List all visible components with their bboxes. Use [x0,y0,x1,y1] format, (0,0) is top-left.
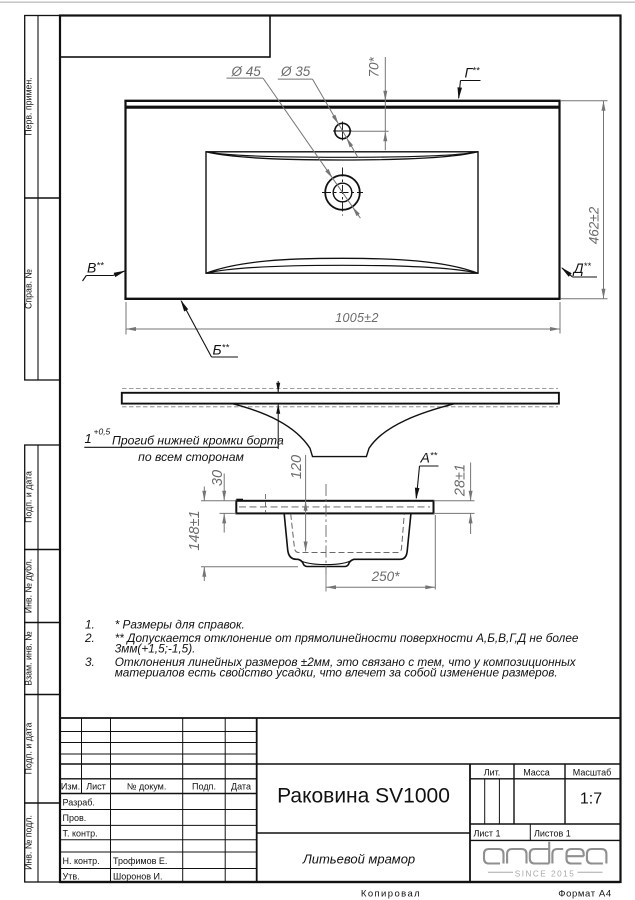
svg-text:Б**: Б** [213,342,230,358]
svg-text:1:7: 1:7 [580,791,602,808]
svg-text:Масса: Масса [523,768,550,778]
svg-text:1.: 1. [85,618,95,632]
svg-text:Инв. № дубл.: Инв. № дубл. [23,559,33,613]
svg-text:Раковина SV1000: Раковина SV1000 [277,785,450,808]
svg-text:Литьевой мрамор: Литьевой мрамор [302,852,415,867]
svg-text:В**: В** [87,260,104,276]
svg-text:Ø 35: Ø 35 [280,64,311,79]
svg-text:Взам. инв. №: Взам. инв. № [23,631,33,686]
svg-text:Изм.: Изм. [61,782,80,792]
svg-text:Справ. №: Справ. № [23,269,33,309]
svg-text:Листов 1: Листов 1 [534,829,571,839]
svg-text:Копировал: Копировал [361,889,421,900]
svg-text:Подп. и дата: Подп. и дата [23,722,33,774]
svg-text:1005±2: 1005±2 [335,311,378,325]
svg-text:Пров.: Пров. [63,813,87,823]
svg-text:Д**: Д** [572,260,592,276]
svg-text:Т. контр.: Т. контр. [63,829,98,839]
svg-text:Ø 45: Ø 45 [231,64,262,79]
svg-text:Разраб.: Разраб. [63,798,95,808]
svg-text:1: 1 [85,431,92,446]
svg-text:3.: 3. [85,655,95,669]
svg-text:Н. контр.: Н. контр. [63,856,100,866]
svg-text:Прогиб нижней кромки борта: Прогиб нижней кромки борта [112,434,284,448]
svg-text:462±2: 462±2 [587,206,602,244]
svg-text:+0,5: +0,5 [94,427,111,437]
svg-text:А**: А** [420,450,438,466]
svg-text:Лист 1: Лист 1 [474,829,501,839]
svg-text:Г**: Г** [465,65,480,81]
svg-text:Масштаб: Масштаб [573,768,612,778]
svg-text:SINCE 2015: SINCE 2015 [515,870,576,879]
svg-text:Трофимов Е.: Трофимов Е. [113,856,167,866]
svg-text:Лист: Лист [86,782,106,792]
svg-text:Лит.: Лит. [484,768,501,778]
svg-text:Формат А4: Формат А4 [558,889,611,900]
svg-text:148±1: 148±1 [187,510,203,550]
svg-text:Подп. и дата: Подп. и дата [23,471,33,523]
svg-text:по всем сторонам: по всем сторонам [138,450,244,464]
svg-text:3мм(+1,5;-1,5).: 3мм(+1,5;-1,5). [115,642,196,656]
svg-text:2.: 2. [84,631,95,645]
svg-text:250*: 250* [371,569,401,584]
svg-text:30: 30 [210,470,226,486]
svg-text:Перв. примен.: Перв. примен. [23,77,33,135]
svg-text:Инв. № подл.: Инв. № подл. [23,815,33,870]
svg-text:Шоронов И.: Шоронов И. [113,872,163,882]
svg-text:Утв.: Утв. [63,872,80,882]
svg-text:* Размеры для справок.: * Размеры для справок. [115,618,245,632]
svg-text:28±1: 28±1 [453,464,469,497]
svg-text:Подп.: Подп. [192,782,216,792]
svg-text:Дата: Дата [231,782,251,792]
svg-text:№ докум.: № докум. [127,782,167,792]
svg-text:70*: 70* [367,56,382,77]
svg-text:120: 120 [289,455,305,479]
svg-text:материалов есть свойство усадк: материалов есть свойство усадки, что вле… [115,666,558,680]
